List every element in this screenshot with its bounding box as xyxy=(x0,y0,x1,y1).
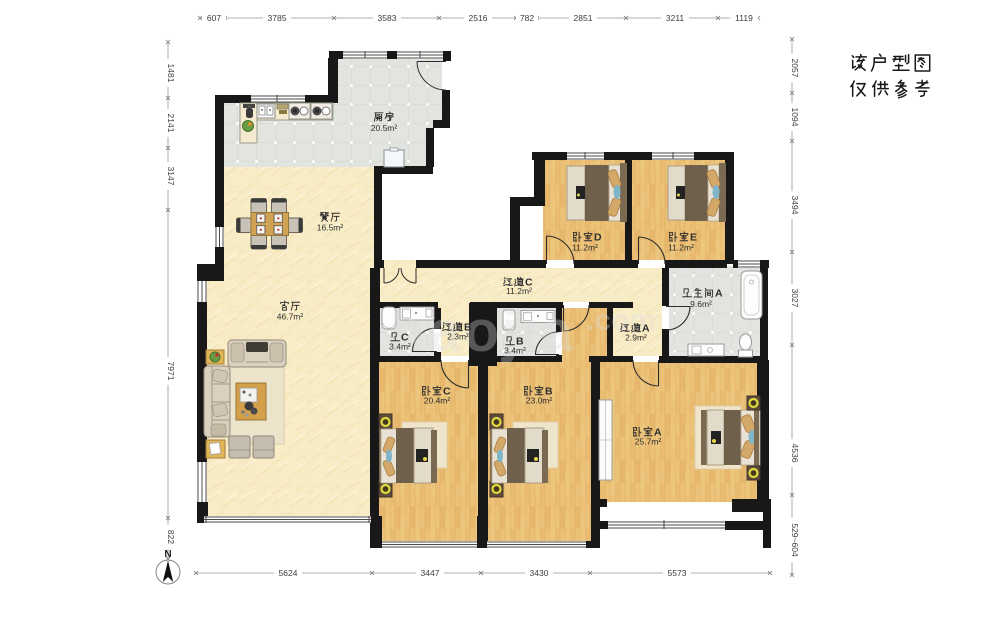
svg-text:3.4m²: 3.4m² xyxy=(504,346,526,356)
svg-text:A: A xyxy=(715,288,723,300)
svg-text:2.9m²: 2.9m² xyxy=(625,333,647,343)
svg-text:23.0m²: 23.0m² xyxy=(526,396,553,406)
svg-text:3147: 3147 xyxy=(166,167,176,186)
svg-text:1094: 1094 xyxy=(790,108,800,127)
svg-text:2516: 2516 xyxy=(469,13,488,23)
svg-text:3785: 3785 xyxy=(268,13,287,23)
svg-text:782: 782 xyxy=(520,13,534,23)
svg-text:3430: 3430 xyxy=(530,568,549,578)
svg-text:3.4m²: 3.4m² xyxy=(389,342,411,352)
svg-text:4536: 4536 xyxy=(790,444,800,463)
svg-text:2.3m²: 2.3m² xyxy=(447,332,469,342)
svg-text:5573: 5573 xyxy=(668,568,687,578)
svg-text:2057: 2057 xyxy=(790,59,800,78)
svg-text:2851: 2851 xyxy=(574,13,593,23)
svg-text:11.2m²: 11.2m² xyxy=(572,243,598,253)
svg-text:haojia: haojia xyxy=(390,299,576,364)
svg-text:46.7m²: 46.7m² xyxy=(277,312,304,322)
svg-text:25.7m²: 25.7m² xyxy=(635,437,662,447)
svg-text:N: N xyxy=(164,549,171,560)
svg-text:16.5m²: 16.5m² xyxy=(317,223,344,233)
svg-text:822: 822 xyxy=(166,530,176,544)
svg-text:5624: 5624 xyxy=(279,568,298,578)
svg-text:1481: 1481 xyxy=(166,64,176,83)
svg-text:529~604: 529~604 xyxy=(790,523,800,557)
svg-text:607: 607 xyxy=(207,13,221,23)
svg-text:3027: 3027 xyxy=(790,289,800,308)
svg-text:2141: 2141 xyxy=(166,114,176,133)
svg-text:3211: 3211 xyxy=(666,13,685,23)
svg-text:7971: 7971 xyxy=(166,362,176,381)
svg-text:20.4m²: 20.4m² xyxy=(424,396,451,406)
svg-text:11.2m²: 11.2m² xyxy=(506,286,532,296)
svg-text:9.6m²: 9.6m² xyxy=(690,299,712,309)
svg-text:11.2m²: 11.2m² xyxy=(668,243,694,253)
svg-text:3447: 3447 xyxy=(421,568,440,578)
svg-text:3494: 3494 xyxy=(790,196,800,215)
svg-text:1119: 1119 xyxy=(735,13,753,23)
svg-text:3583: 3583 xyxy=(378,13,397,23)
svg-text:20.5m²: 20.5m² xyxy=(371,123,398,133)
